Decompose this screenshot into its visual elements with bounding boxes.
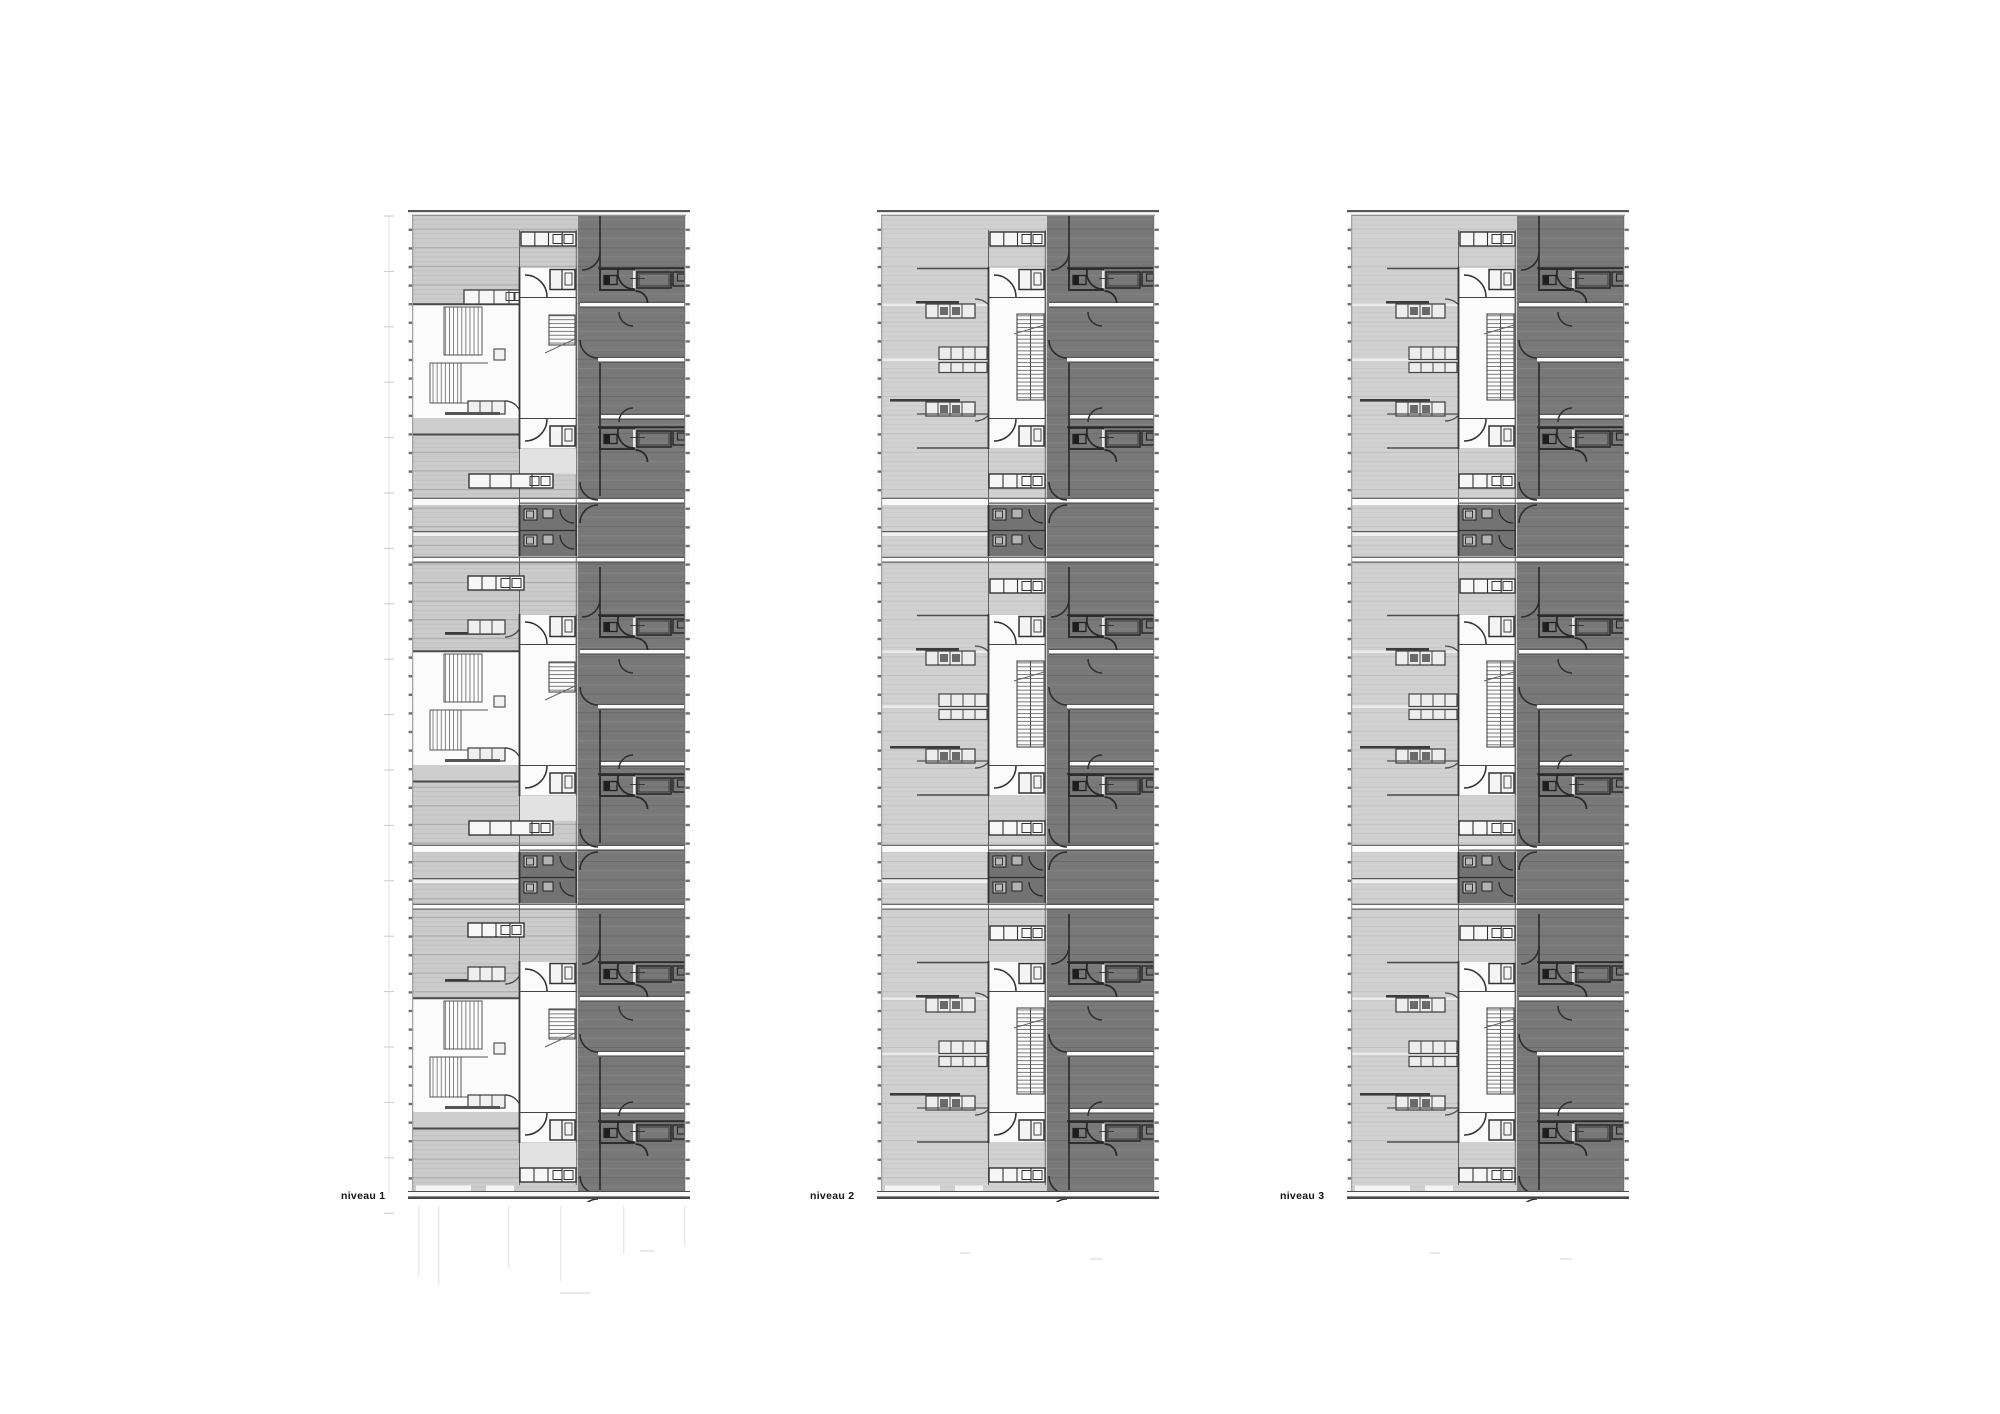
svg-text:niveau 2: niveau 2 xyxy=(810,1190,854,1202)
svg-text:niveau 1: niveau 1 xyxy=(341,1190,385,1202)
svg-text:niveau 3: niveau 3 xyxy=(1280,1190,1324,1202)
